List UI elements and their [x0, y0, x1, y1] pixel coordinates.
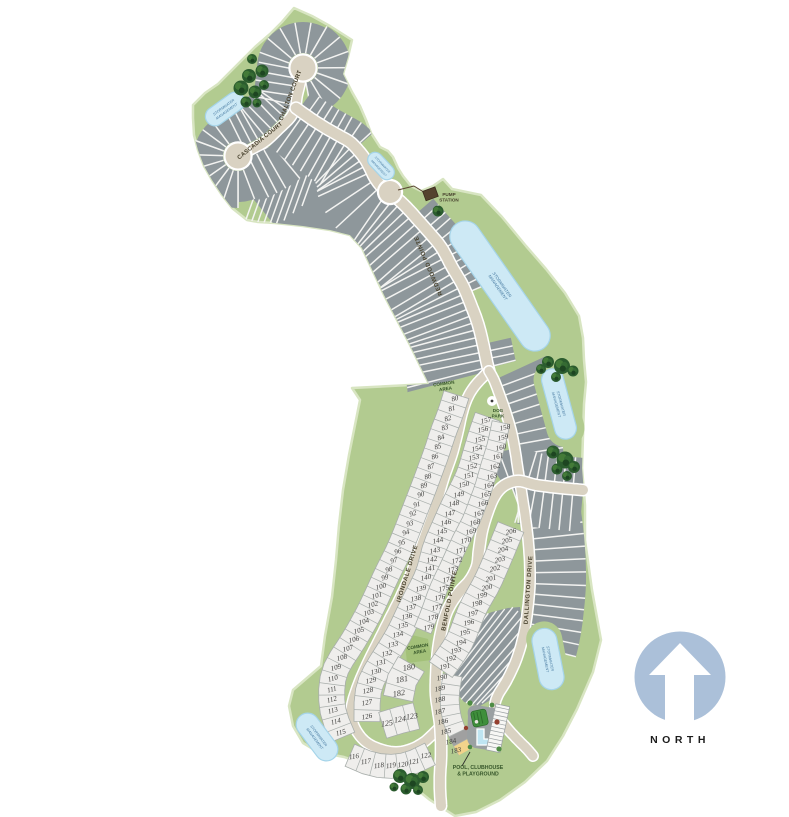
- svg-text:PARK: PARK: [492, 414, 505, 419]
- svg-text:NORTH: NORTH: [650, 734, 710, 746]
- svg-text:123: 123: [405, 711, 418, 722]
- svg-text:116: 116: [348, 752, 360, 761]
- svg-text:119: 119: [385, 761, 397, 770]
- svg-text:121: 121: [408, 757, 420, 766]
- svg-text:118: 118: [373, 761, 385, 770]
- svg-text:STATION: STATION: [439, 198, 459, 203]
- svg-text:POOL, CLUBHOUSE: POOL, CLUBHOUSE: [453, 765, 504, 771]
- svg-text:124: 124: [393, 714, 406, 725]
- svg-text:125: 125: [380, 718, 393, 729]
- svg-text:122: 122: [420, 751, 432, 760]
- svg-text:PUMP: PUMP: [442, 192, 455, 197]
- svg-text:DOG: DOG: [493, 408, 504, 413]
- svg-text:120: 120: [397, 760, 409, 769]
- svg-text:& PLAYGROUND: & PLAYGROUND: [457, 772, 499, 778]
- svg-text:117: 117: [360, 757, 372, 766]
